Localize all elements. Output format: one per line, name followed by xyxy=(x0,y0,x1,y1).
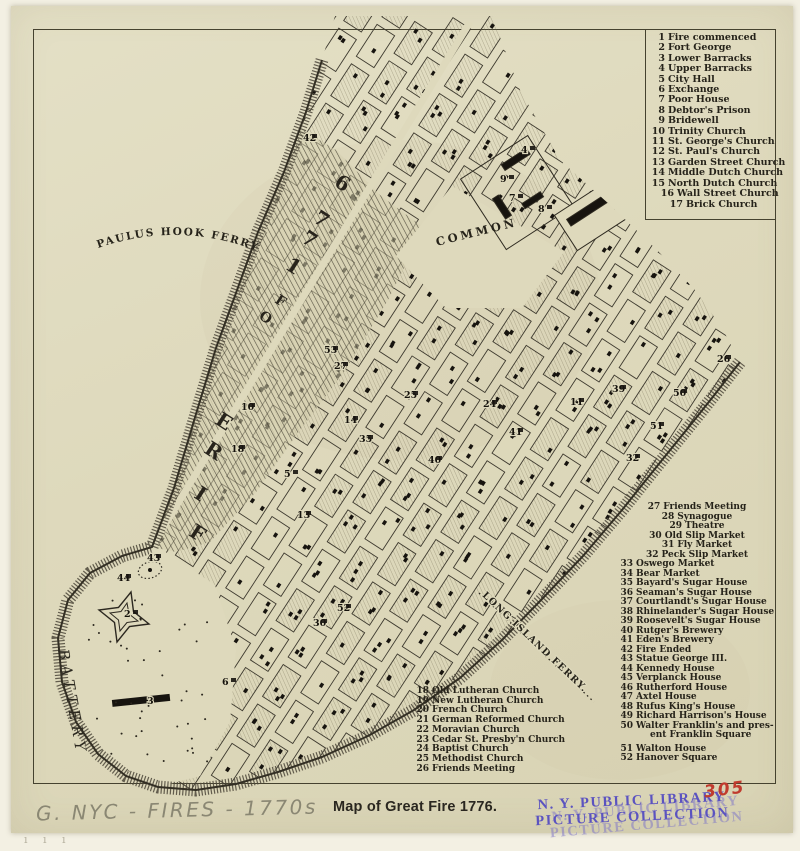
svg-text:2: 2 xyxy=(124,609,131,620)
legend-item: 17Brick Church xyxy=(650,200,772,210)
map-caption: Map of Great Fire 1776. xyxy=(333,799,497,815)
svg-text:5: 5 xyxy=(284,469,291,480)
svg-text:9: 9 xyxy=(500,174,507,185)
statue-dot xyxy=(148,568,152,572)
legend-item: 52Hanover Square xyxy=(618,754,776,764)
svg-text:7: 7 xyxy=(509,193,516,204)
pencil-marks: ı ı ı xyxy=(24,833,72,846)
legend-item-wrap: ent Franklin Square xyxy=(618,731,776,741)
legend-right: 27Friends Meeting28Synagogue29Theatre30O… xyxy=(618,503,776,764)
scanned-map-page: FIREOF1776 42497810185135327251435404124… xyxy=(0,0,800,851)
legend-top-right: 1Fire commenced2Fort George3Lower Barrac… xyxy=(650,33,772,210)
svg-text:8: 8 xyxy=(538,204,545,215)
legend-bottom: 18Old Lutheran Church19New Lutheran Chur… xyxy=(414,687,632,774)
svg-text:4: 4 xyxy=(521,145,528,156)
svg-text:3: 3 xyxy=(147,696,154,707)
svg-text:6: 6 xyxy=(222,677,229,688)
legend-item: 26Friends Meeting xyxy=(414,765,632,775)
